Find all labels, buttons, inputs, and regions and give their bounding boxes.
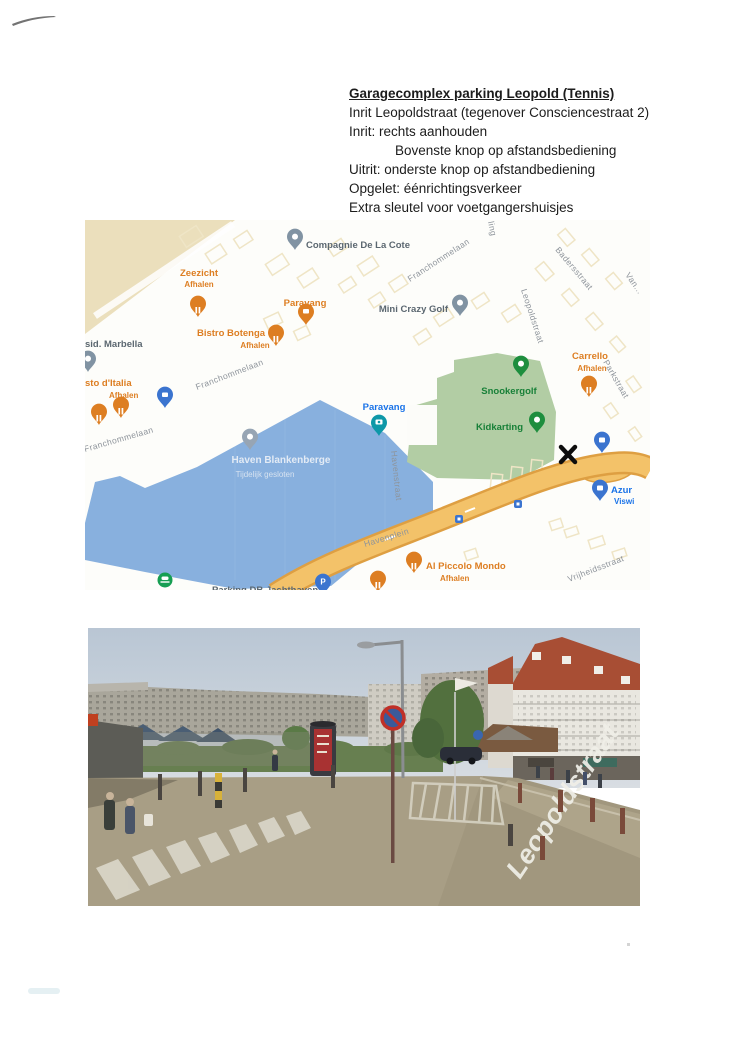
poi-label: Compagnie De La Cote (306, 240, 410, 251)
poi-label: Haven Blankenberge (232, 455, 331, 466)
transit-stop-icon (455, 515, 463, 523)
poi-label: Bistro Botenga (197, 328, 266, 339)
map-image: Franchommelaan Franchommelaan Franchomme… (85, 220, 650, 590)
transit-stop-icon (514, 500, 522, 508)
scan-dot (627, 943, 630, 946)
scan-smudge (28, 988, 60, 994)
doc-line: Inrit: rechts aanhouden (349, 122, 709, 141)
poi-label: Azur (611, 485, 632, 496)
poi-ferry-icon (158, 573, 173, 588)
poi-label: sid. Marbella (85, 339, 143, 350)
poi-sublabel: Tijdelijk gesloten (236, 470, 295, 479)
striped-bollard (215, 773, 222, 808)
poi-sublabel: Afhalen (577, 364, 606, 373)
doc-line: Inrit Leopoldstraat (tegenover Conscienc… (349, 103, 709, 122)
page-title: Garagecomplex parking Leopold (Tennis) (349, 84, 709, 103)
doc-line: Bovenste knop op afstandsbediening (349, 141, 709, 160)
traffic-sign-icon (473, 730, 483, 740)
pen-stroke-mark (12, 16, 56, 26)
poi-label: Carrello (572, 351, 608, 362)
right-buildings (488, 637, 640, 780)
poi-sublabel: Viswi (614, 497, 634, 506)
doc-line: Extra sleutel voor voetgangershuisjes (349, 198, 709, 217)
poi-sublabel: Afhalen (440, 574, 469, 583)
poi-sublabel: Afhalen (240, 341, 269, 350)
poi-label: Parking DB Jachthaven (212, 585, 318, 590)
pen-stroke (0, 0, 80, 40)
street-view-photo: Leopoldstraat (88, 628, 640, 906)
poi-label: Paravang (363, 402, 406, 413)
poi-label: Kidkarting (476, 422, 523, 433)
poi-sublabel: Afhalen (184, 280, 213, 289)
poi-label: Al Piccolo Mondo (426, 561, 506, 572)
poi-label: sto d'Italia (85, 378, 132, 389)
poi-label: Zeezicht (180, 268, 219, 279)
parking-pin-letter: P (320, 578, 326, 587)
poi-label: Mini Crazy Golf (379, 304, 449, 315)
instruction-block: Garagecomplex parking Leopold (Tennis) I… (349, 84, 709, 217)
doc-line: Opgelet: éénrichtingsverkeer (349, 179, 709, 198)
doc-line: Uitrit: onderste knop op afstandbedienin… (349, 160, 709, 179)
scanned-page: Garagecomplex parking Leopold (Tennis) I… (0, 0, 743, 1051)
poi-label: Snookergolf (481, 386, 537, 397)
